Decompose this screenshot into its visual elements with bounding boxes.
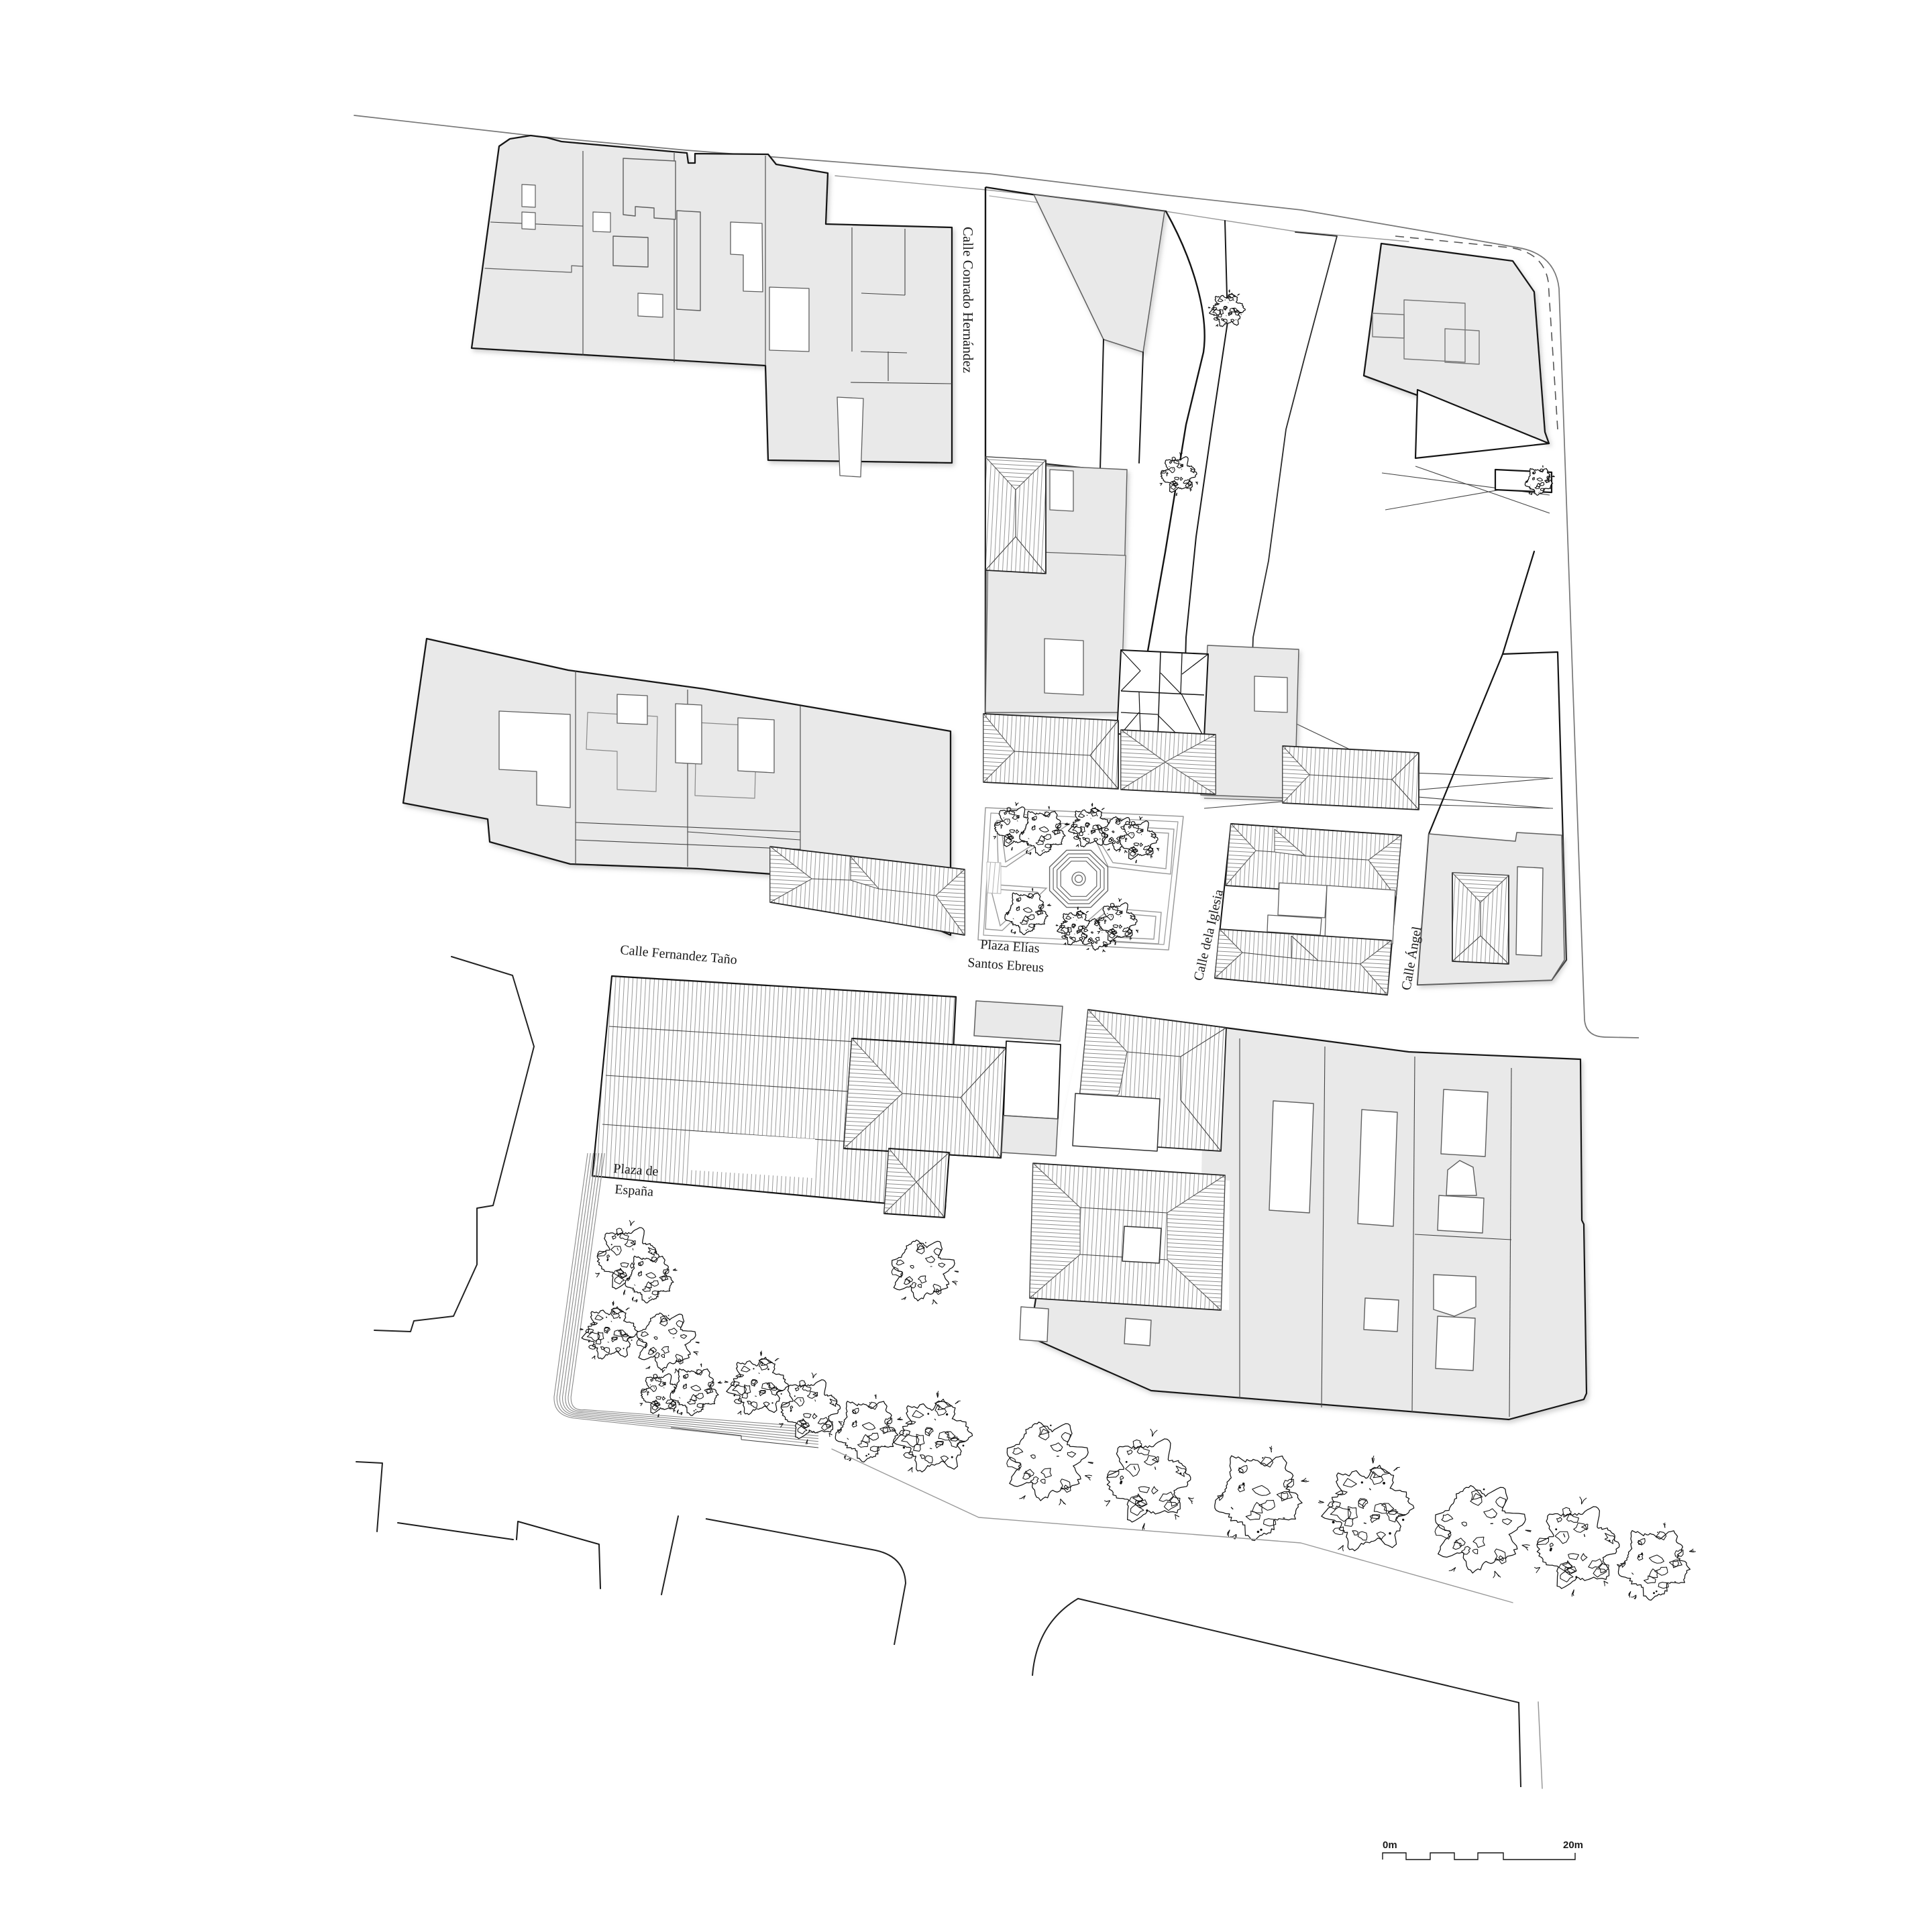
svg-text:0m: 0m: [1383, 1839, 1397, 1851]
svg-text:Plaza Elías: Plaza Elías: [980, 937, 1040, 956]
svg-text:Santos Ebreus: Santos Ebreus: [967, 955, 1044, 975]
svg-text:Plaza de: Plaza de: [613, 1161, 659, 1179]
svg-text:España: España: [614, 1182, 654, 1199]
svg-text:20m: 20m: [1563, 1839, 1583, 1851]
svg-text:Calle Fernandez Taño: Calle Fernandez Taño: [620, 943, 738, 967]
svg-text:Calle Conrado Hernández: Calle Conrado Hernández: [960, 227, 976, 373]
